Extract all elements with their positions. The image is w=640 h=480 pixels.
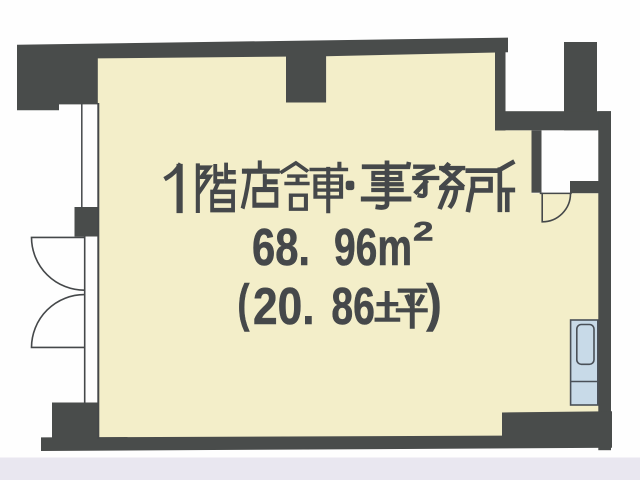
svg-text:20.: 20. (253, 278, 315, 336)
svg-text:68.: 68. (252, 219, 310, 277)
svg-text:): ) (426, 275, 442, 333)
svg-text:(: ( (238, 275, 250, 333)
svg-text:86: 86 (331, 278, 375, 336)
svg-text:2: 2 (413, 217, 434, 247)
svg-text:96m: 96m (334, 219, 412, 277)
